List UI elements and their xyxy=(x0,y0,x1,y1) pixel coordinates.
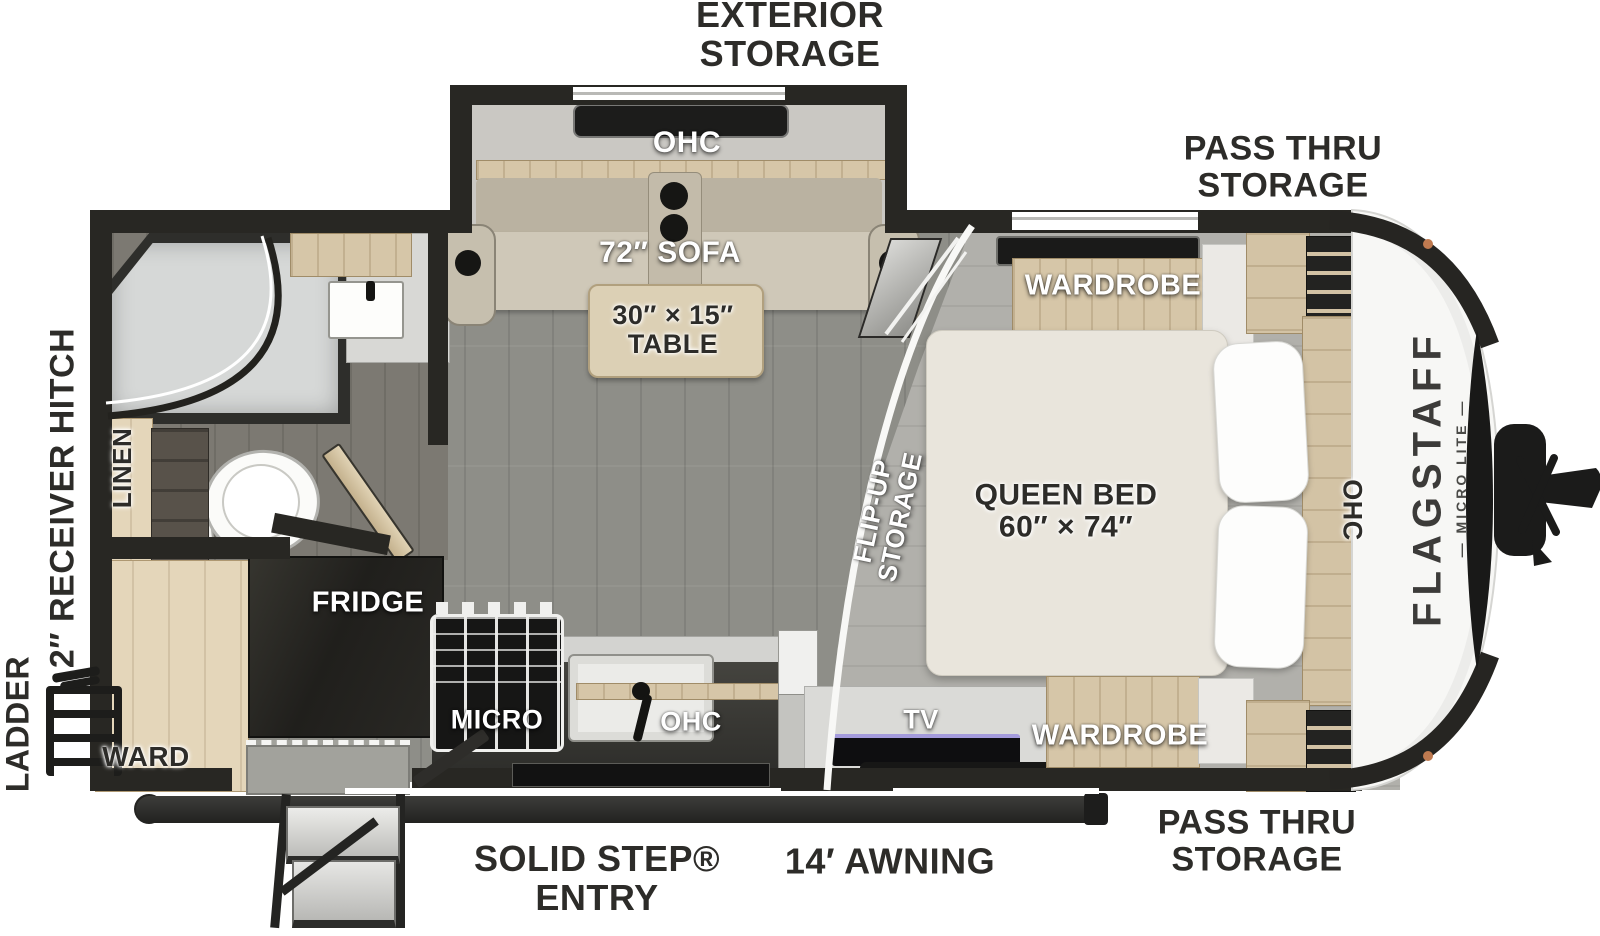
exterior-storage-label: EXTERIOR STORAGE xyxy=(696,0,884,74)
brand-tagline: — MICRO LITE — xyxy=(1453,399,1469,558)
brand-logo: FLAGSTAFF xyxy=(1406,329,1451,627)
bed-ohc-label: OHC xyxy=(1337,479,1366,541)
awning-label: 14′ AWNING xyxy=(785,843,995,882)
ward-label: WARD xyxy=(102,742,190,772)
shower-glass-white xyxy=(106,236,271,403)
fridge-label: FRIDGE xyxy=(312,587,425,618)
wardrobe-bottom-label: WARDROBE xyxy=(1032,720,1208,751)
pass-thru-storage-top-label: PASS THRU STORAGE xyxy=(1184,130,1382,203)
marker-light-bottom xyxy=(1423,751,1433,761)
sofa-label: 72″ SOFA xyxy=(599,237,741,269)
linen-label: LINEN xyxy=(108,428,136,509)
floorplan-canvas: EXTERIOR STORAGE PASS THRU STORAGE PASS … xyxy=(0,0,1600,936)
queen-bed-label: QUEEN BED 60″ × 74″ xyxy=(975,480,1158,545)
pass-thru-storage-bottom-label: PASS THRU STORAGE xyxy=(1158,804,1356,877)
solid-step-entry-label: SOLID STEP® ENTRY xyxy=(474,840,720,918)
sofa-ohc-label: OHC xyxy=(653,127,721,159)
table-label: 30″ × 15″ TABLE xyxy=(612,301,733,359)
receiver-hitch-label: 2″ RECEIVER HITCH xyxy=(45,328,82,668)
shower-glass-dark xyxy=(108,238,278,416)
kitchen-ohc-label: OHC xyxy=(660,707,722,736)
micro-label: MICRO xyxy=(451,705,544,734)
wardrobe-top-label: WARDROBE xyxy=(1025,270,1201,301)
marker-light-top xyxy=(1423,239,1433,249)
tv-label: TV xyxy=(903,705,939,734)
ladder-label: LADDER xyxy=(1,656,36,792)
